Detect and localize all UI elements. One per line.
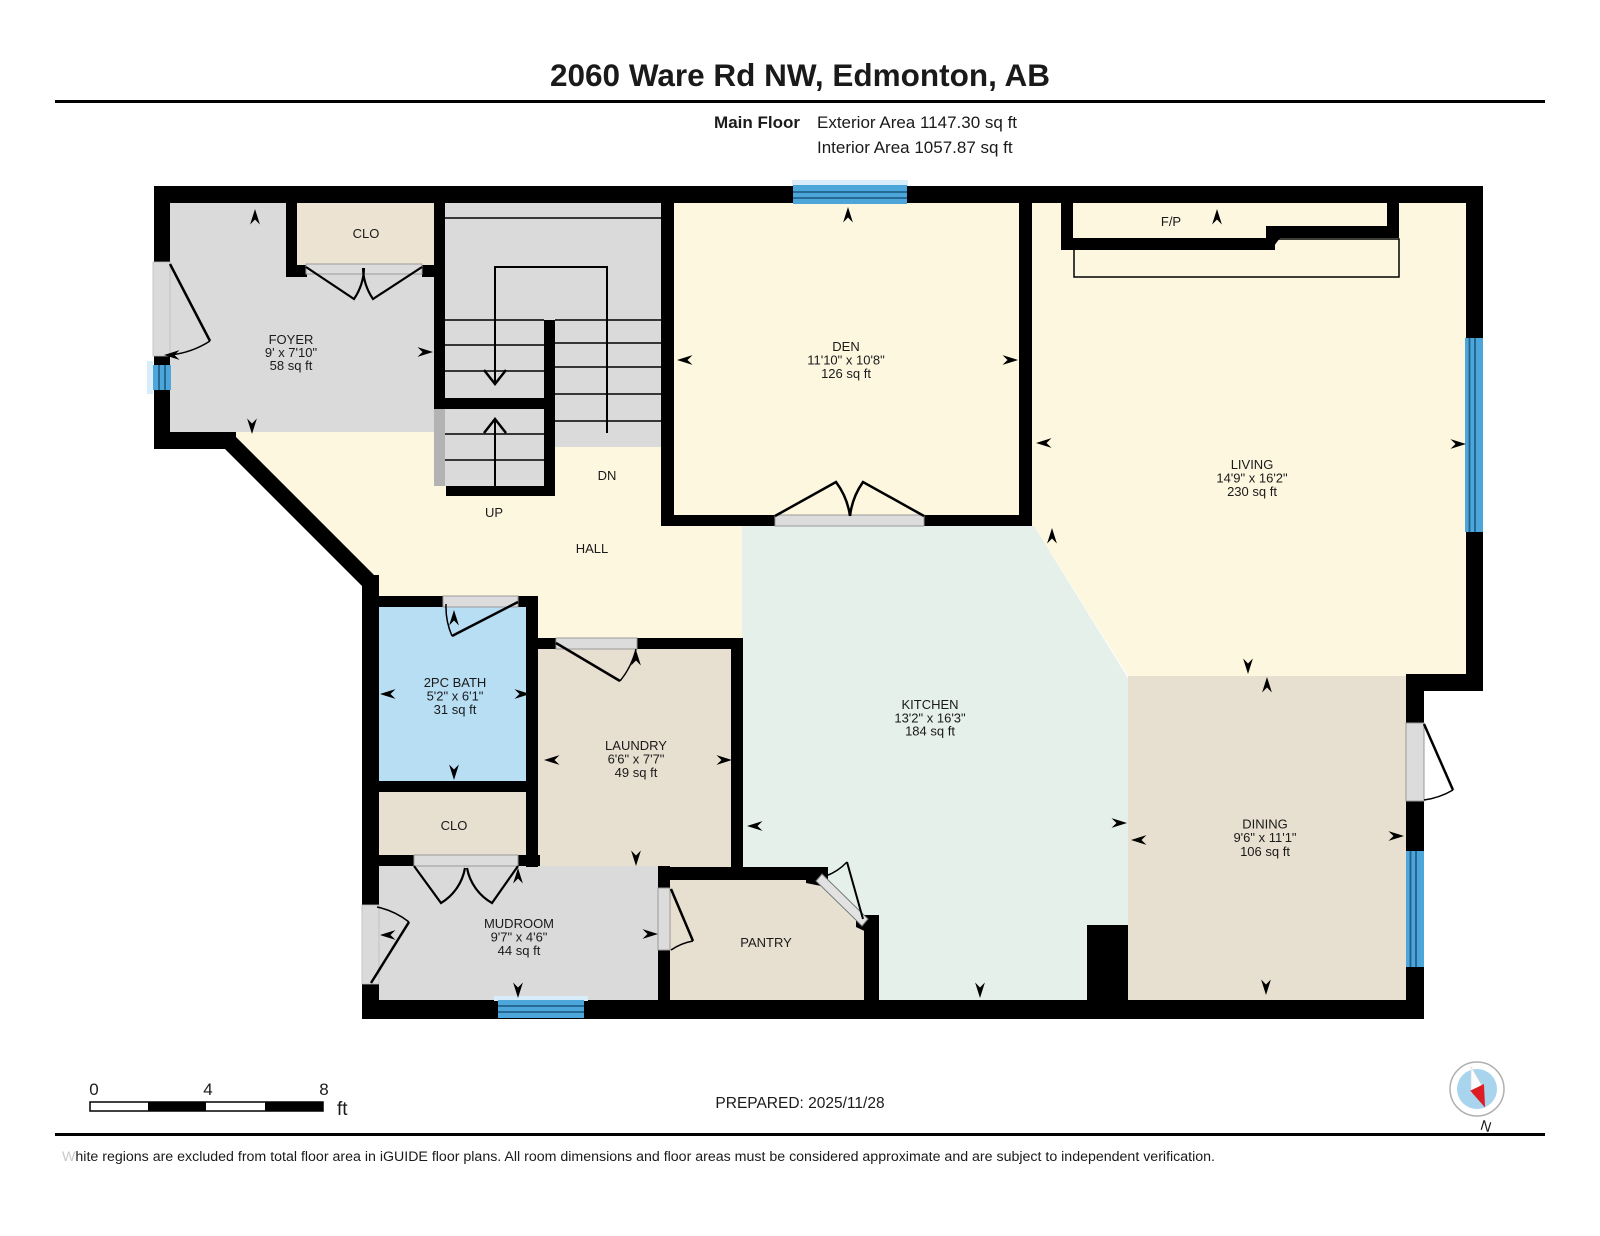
svg-text:58 sq ft: 58 sq ft: [270, 358, 313, 373]
svg-text:HALL: HALL: [576, 541, 609, 556]
svg-text:Main Floor: Main Floor: [714, 113, 800, 132]
svg-text:184 sq ft: 184 sq ft: [905, 724, 955, 739]
svg-text:49 sq ft: 49 sq ft: [615, 765, 658, 780]
svg-text:White regions are excluded fro: White regions are excluded from total fl…: [62, 1149, 1215, 1165]
svg-text:0: 0: [89, 1080, 98, 1099]
svg-text:CLO: CLO: [441, 818, 468, 833]
svg-text:CLO: CLO: [353, 226, 380, 241]
svg-text:126 sq ft: 126 sq ft: [821, 366, 871, 381]
svg-text:44 sq ft: 44 sq ft: [498, 943, 541, 958]
svg-text:DN: DN: [598, 468, 617, 483]
svg-text:UP: UP: [485, 505, 503, 520]
svg-text:4: 4: [203, 1080, 212, 1099]
svg-text:PANTRY: PANTRY: [740, 935, 792, 950]
svg-text:230 sq ft: 230 sq ft: [1227, 484, 1277, 499]
svg-text:8: 8: [319, 1080, 328, 1099]
svg-text:31 sq ft: 31 sq ft: [434, 702, 477, 717]
svg-text:9'6" x 11'1": 9'6" x 11'1": [1233, 830, 1296, 845]
svg-text:F/P: F/P: [1161, 214, 1181, 229]
svg-text:Exterior Area 1147.30 sq ft: Exterior Area 1147.30 sq ft: [817, 113, 1017, 132]
svg-text:106 sq ft: 106 sq ft: [1240, 844, 1290, 859]
svg-text:Interior Area 1057.87 sq ft: Interior Area 1057.87 sq ft: [817, 138, 1013, 157]
svg-text:PREPARED: 2025/11/28: PREPARED: 2025/11/28: [715, 1095, 884, 1112]
svg-text:ft: ft: [337, 1099, 348, 1120]
svg-text:2060 Ware Rd NW, Edmonton, AB: 2060 Ware Rd NW, Edmonton, AB: [550, 57, 1050, 93]
